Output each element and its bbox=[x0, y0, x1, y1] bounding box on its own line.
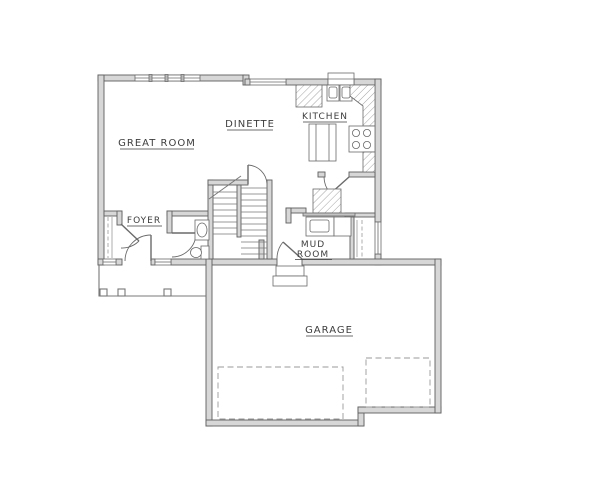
garage-entry-steps-icon bbox=[273, 266, 307, 286]
stair-break-line bbox=[209, 176, 241, 199]
powder-room-fixtures bbox=[191, 220, 210, 259]
garage-bay-left-outline bbox=[218, 367, 343, 419]
kitchen-fixtures bbox=[296, 85, 375, 172]
refrigerator-icon bbox=[296, 85, 322, 107]
window-dinette-icon bbox=[250, 79, 286, 85]
stair-treads-left bbox=[213, 192, 237, 234]
garage-bay-right-outline bbox=[366, 358, 430, 407]
garage-bottom-wall-right bbox=[358, 407, 441, 413]
kitchen-label: KITCHEN bbox=[302, 112, 348, 122]
garage-left-wall bbox=[206, 259, 212, 426]
dinette-label: DINETTE bbox=[225, 119, 275, 130]
front-wall-b bbox=[116, 259, 122, 265]
foyer-closet-fixtures bbox=[108, 217, 112, 258]
foyer-closet-door bbox=[121, 224, 139, 248]
kitchen-mudroom-wall-stub bbox=[318, 172, 325, 177]
kitchen-island-icon bbox=[309, 124, 336, 161]
window-great-room-icon bbox=[135, 75, 200, 82]
front-door bbox=[125, 235, 151, 261]
mudroom-counter-edge bbox=[303, 213, 355, 216]
porch bbox=[99, 265, 206, 296]
foyer-label: FOYER bbox=[127, 216, 161, 226]
vanity-sink-icon bbox=[197, 223, 207, 237]
garage-bottom-wall-left bbox=[206, 420, 364, 426]
window-foyer-left-icon bbox=[103, 259, 116, 265]
stair-center-wall bbox=[237, 185, 241, 237]
stair-top-wall bbox=[208, 180, 248, 185]
right-wall-upper bbox=[375, 79, 381, 222]
front-wall-d bbox=[171, 259, 277, 265]
great-room-label: GREAT ROOM bbox=[118, 138, 196, 149]
counter-right-icon bbox=[363, 152, 375, 172]
window-foyer-right-icon bbox=[155, 259, 171, 265]
range-icon bbox=[349, 126, 375, 152]
powder-room-left-wall bbox=[167, 211, 172, 233]
garage-details bbox=[218, 266, 430, 419]
stair-right-wall bbox=[267, 180, 272, 259]
mud-room-label-line1: MUD bbox=[301, 240, 325, 250]
corner-counter-icon bbox=[350, 85, 375, 126]
kitchen-sink-icon bbox=[327, 85, 352, 101]
window-kitchen-sink-icon bbox=[328, 73, 354, 85]
laundry-unit-icon bbox=[306, 217, 351, 236]
foyer-closet-side-wall bbox=[117, 211, 122, 225]
top-wall-right-a bbox=[245, 79, 250, 85]
mud-room-label-line2: ROOM bbox=[297, 250, 329, 260]
mudroom-pantry-icon bbox=[313, 189, 341, 213]
porch-post-icon bbox=[100, 289, 107, 296]
kitchen-mudroom-wall bbox=[349, 172, 375, 177]
window-mudroom-icon bbox=[375, 222, 381, 254]
garage-right-wall bbox=[435, 259, 441, 413]
porch-post-icon bbox=[118, 289, 125, 296]
left-wall bbox=[98, 75, 104, 265]
floor-plan-drawing: GREAT ROOM DINETTE KITCHEN FOYER MUD ROO… bbox=[0, 0, 600, 480]
porch-outline bbox=[99, 265, 206, 296]
garage-label: GARAGE bbox=[305, 325, 353, 336]
top-wall-right-b bbox=[286, 79, 328, 85]
front-wall-a bbox=[98, 259, 103, 265]
porch-post-icon bbox=[164, 289, 171, 296]
hall-wall-stub bbox=[259, 240, 264, 259]
toilet-icon bbox=[191, 246, 210, 259]
powder-room-top-wall bbox=[167, 211, 213, 216]
basement-stair-door bbox=[248, 165, 267, 184]
mudroom-nw-wall-vertical bbox=[286, 208, 291, 223]
floor-plan-canvas: GREAT ROOM DINETTE KITCHEN FOYER MUD ROO… bbox=[0, 0, 600, 480]
